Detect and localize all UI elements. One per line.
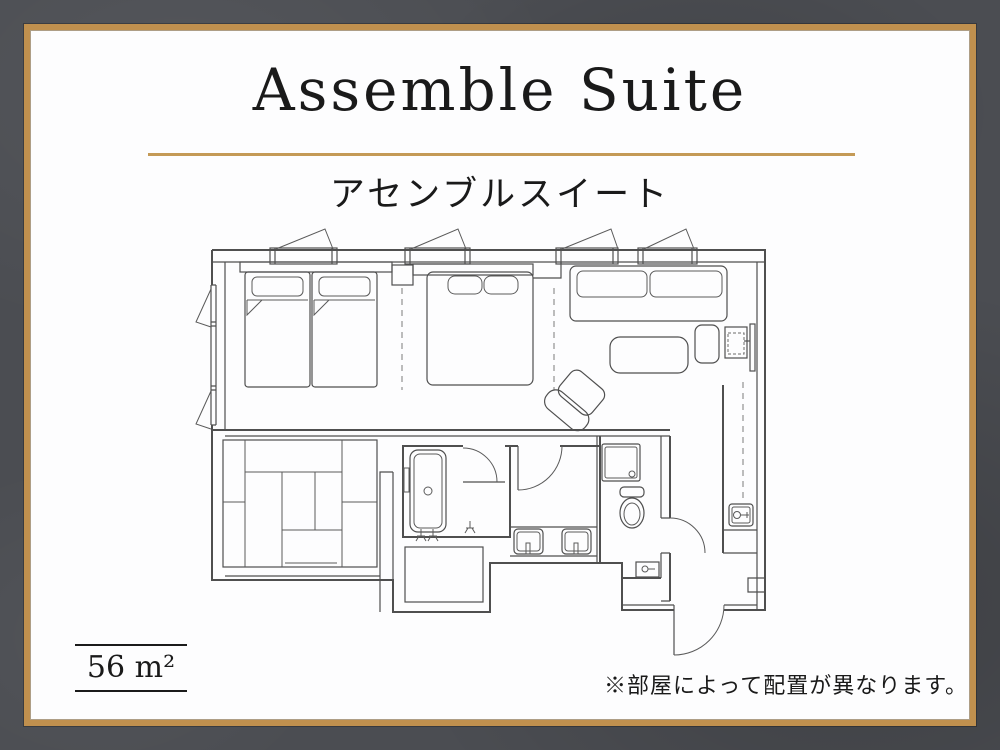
- layout-note: ※部屋によって配置が異なります。: [408, 668, 968, 700]
- page-title: Assemble Suite: [0, 56, 1000, 124]
- title-divider: [148, 153, 855, 156]
- area-label: 56 m²: [75, 644, 187, 692]
- floorplan-card: [24, 24, 976, 726]
- page-subtitle: アセンブルスイート: [0, 166, 1000, 217]
- page-background: Assemble Suite アセンブルスイート: [0, 0, 1000, 750]
